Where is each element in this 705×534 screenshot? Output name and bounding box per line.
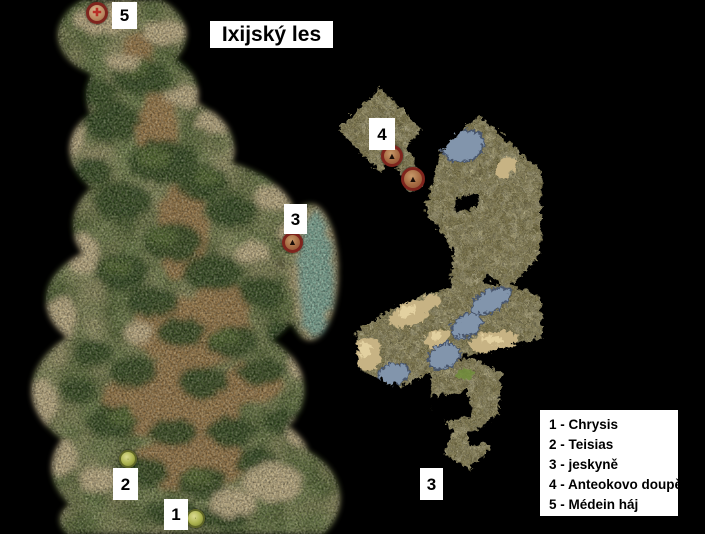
legend-item-2: 2 - Teisias (549, 435, 674, 455)
map-title: Ixijský les (210, 21, 333, 48)
cave-entrance-icon: ▲ (409, 175, 418, 184)
poi-5-label: 5 (112, 2, 137, 29)
legend-item-4: 4 - Anteokovo doupě (549, 475, 674, 495)
poi-1-marker: · (186, 509, 205, 528)
poi-3-forest-marker: ▲ (282, 232, 303, 253)
forest-map (0, 0, 352, 534)
poi-2-marker: · (119, 450, 137, 468)
legend: 1 - Chrysis 2 - Teisias 3 - jeskyně 4 - … (540, 410, 678, 516)
poi-4-marker-lower: ▲ (401, 167, 425, 191)
poi-5-marker: ✚ (86, 2, 108, 24)
legend-item-1: 1 - Chrysis (549, 415, 674, 435)
grove-marker-icon: ✚ (92, 8, 101, 19)
poi-2-label: 2 (113, 468, 138, 500)
poi-1-label: 1 (164, 499, 188, 530)
legend-item-5: 5 - Médein háj (549, 495, 674, 515)
cave-moss-patch (454, 367, 472, 377)
cave-entrance-icon: ▲ (388, 152, 397, 161)
cave-entrance-icon: ▲ (288, 238, 297, 247)
poi-4-label: 4 (369, 118, 395, 150)
poi-3-cave-exit-label: 3 (420, 468, 443, 500)
map-screen: Ixijský les ✚ 5 3 ▲ · 2 1 · 4 ▲ ▲ 3 1 - … (0, 0, 705, 534)
legend-item-3: 3 - jeskyně (549, 455, 674, 475)
cave-map (325, 70, 550, 485)
poi-3-forest-label: 3 (284, 204, 307, 234)
